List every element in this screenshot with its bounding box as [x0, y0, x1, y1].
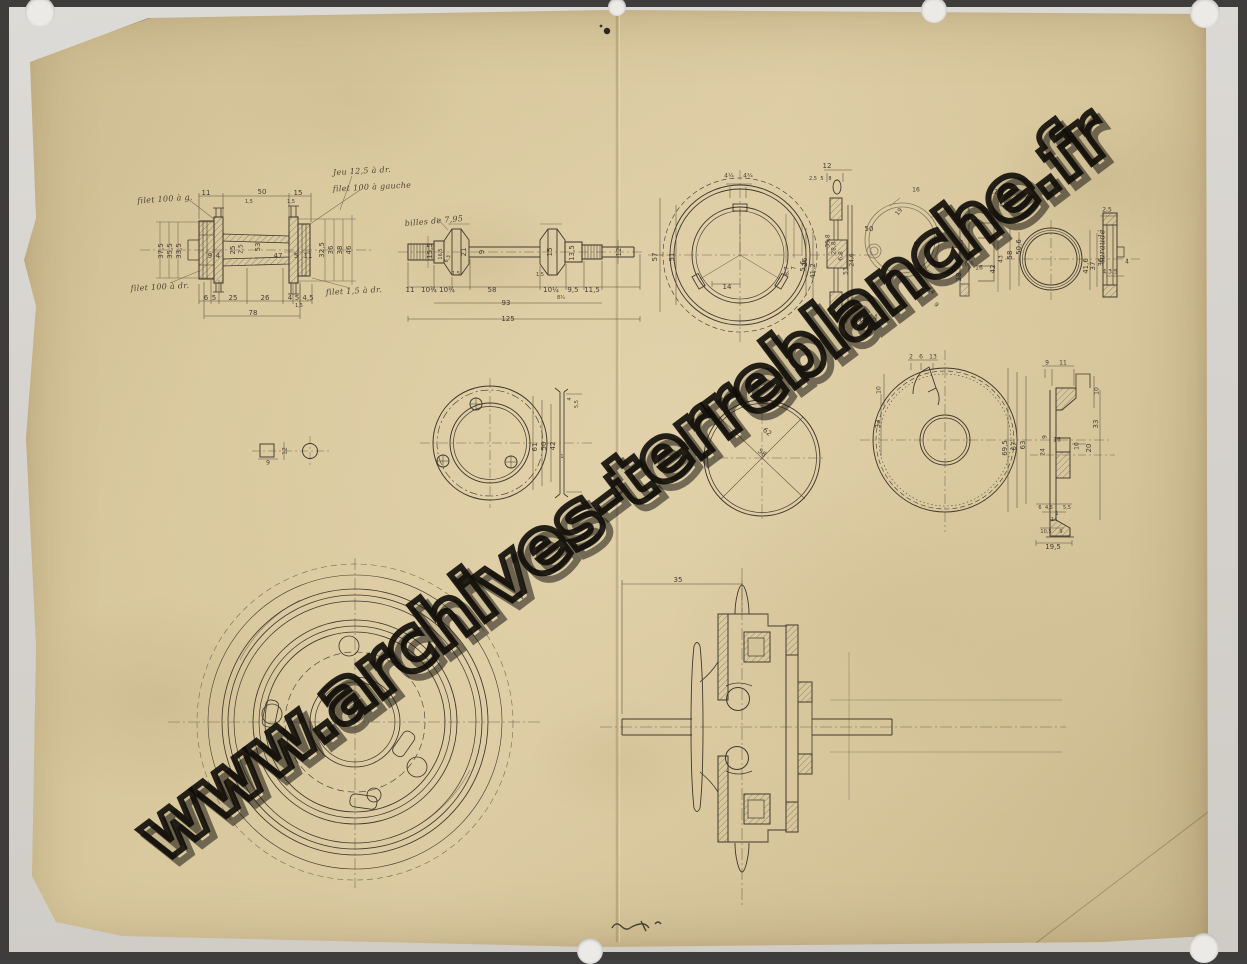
- hub-cross-section-view: [140, 176, 372, 319]
- corner-crease: [1032, 812, 1208, 946]
- flange-disc-view: [420, 378, 592, 508]
- ring-front-view: [700, 396, 824, 520]
- hub-shell-section-view: [1030, 366, 1115, 546]
- large-flange-front-view: [168, 558, 542, 888]
- technical-drawing: [0, 0, 1247, 960]
- tracing-paper-sheet: [20, 6, 1208, 950]
- center-fold: [32, 10, 1208, 946]
- threaded-ring-view: [1005, 213, 1140, 300]
- hub-assembly-section-view: [600, 568, 1066, 906]
- punch-hole: [1189, 933, 1219, 963]
- scanned-drawing-page: 1150151,51,537,535,533,594252,5534751132…: [0, 0, 1247, 960]
- punch-hole: [577, 938, 603, 964]
- pin-detail-view: [252, 436, 332, 466]
- brake-plate-view: [860, 350, 1110, 532]
- axle-view: [398, 218, 644, 322]
- lockring-section-detail: [960, 200, 998, 296]
- cover-plate-section: [806, 170, 852, 314]
- ink-speck: [604, 28, 610, 34]
- sprocket-detail-view: [865, 198, 942, 285]
